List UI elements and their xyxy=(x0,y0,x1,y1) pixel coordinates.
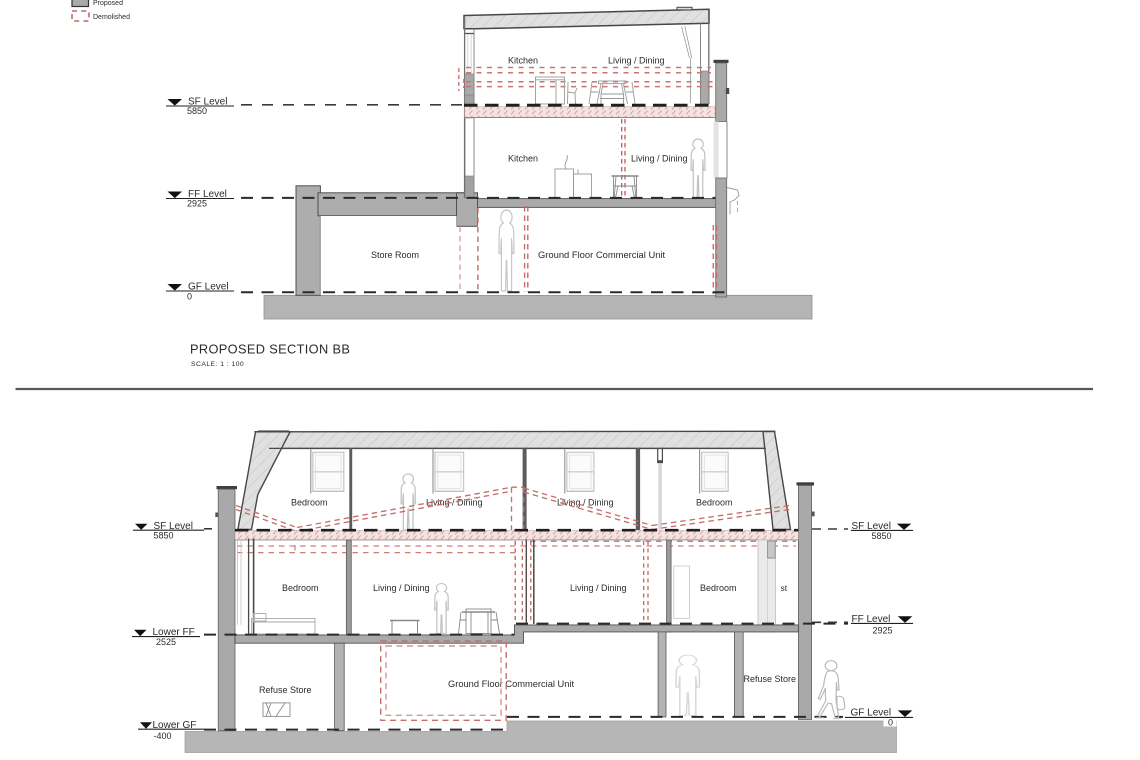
svg-text:Living / Dining: Living / Dining xyxy=(557,498,614,508)
svg-text:0: 0 xyxy=(888,718,893,728)
svg-text:2925: 2925 xyxy=(187,199,207,209)
svg-text:2525: 2525 xyxy=(156,637,176,647)
svg-text:Bedroom: Bedroom xyxy=(291,498,328,508)
svg-text:Bedroom: Bedroom xyxy=(282,583,319,593)
svg-text:Refuse Store: Refuse Store xyxy=(259,685,312,695)
svg-text:5850: 5850 xyxy=(187,106,207,116)
svg-text:GF Level: GF Level xyxy=(851,707,892,718)
svg-text:Proposed: Proposed xyxy=(93,0,123,7)
svg-text:Living / Dining: Living / Dining xyxy=(631,154,688,164)
svg-text:Bedroom: Bedroom xyxy=(696,498,733,508)
svg-text:Living / Dining: Living / Dining xyxy=(608,56,665,66)
svg-text:Lower GF: Lower GF xyxy=(153,720,197,731)
svg-text:st: st xyxy=(781,583,788,593)
svg-text:Living / Dining: Living / Dining xyxy=(373,583,430,593)
svg-text:-400: -400 xyxy=(154,731,172,741)
svg-text:2925: 2925 xyxy=(873,626,893,636)
svg-text:5850: 5850 xyxy=(872,531,892,541)
svg-text:0: 0 xyxy=(187,292,192,302)
svg-text:Ground Floor Commercial Unit: Ground Floor Commercial Unit xyxy=(448,679,574,689)
svg-text:GF Level: GF Level xyxy=(188,282,229,293)
svg-text:Store Room: Store Room xyxy=(371,250,419,260)
svg-text:5850: 5850 xyxy=(154,531,174,541)
svg-text:Bedroom: Bedroom xyxy=(700,583,737,593)
svg-text:Refuse Store: Refuse Store xyxy=(744,674,797,684)
svg-text:PROPOSED SECTION BB: PROPOSED SECTION BB xyxy=(190,342,350,357)
svg-text:Kitchen: Kitchen xyxy=(508,56,538,66)
svg-text:SCALE: 1 : 100: SCALE: 1 : 100 xyxy=(191,361,244,368)
svg-text:Living / Dining: Living / Dining xyxy=(570,583,627,593)
svg-text:Kitchen: Kitchen xyxy=(508,154,538,164)
svg-text:Living / Dining: Living / Dining xyxy=(426,498,483,508)
svg-text:Ground Floor Commercial Unit: Ground Floor Commercial Unit xyxy=(538,249,666,260)
svg-text:Demolished: Demolished xyxy=(93,14,130,21)
